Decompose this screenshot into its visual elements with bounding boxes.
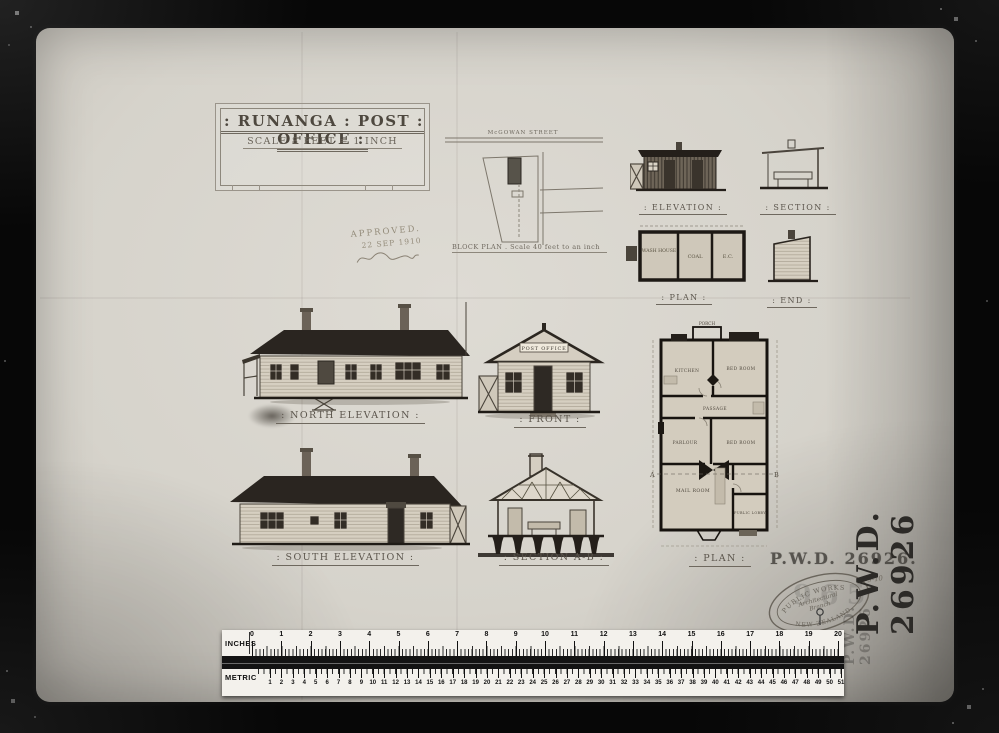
section-marker-b: B — [774, 471, 779, 479]
inch-major-tick — [340, 641, 341, 656]
outbuilding-plan-copper — [626, 246, 637, 261]
cm-number: 30 — [598, 680, 605, 686]
cm-number: 9 — [360, 680, 363, 686]
cm-number: 11 — [381, 680, 387, 686]
cm-major-tick — [658, 669, 659, 678]
porch-walls — [693, 327, 721, 340]
south-elevation-label-text: : SOUTH ELEVATION : — [272, 552, 420, 566]
cm-number: 48 — [803, 680, 810, 686]
cm-number: 38 — [689, 680, 696, 686]
inch-major-tick — [457, 641, 458, 656]
cm-major-tick — [635, 669, 636, 678]
cm-number: 41 — [723, 680, 730, 686]
inch-major-tick — [809, 641, 810, 656]
bedroom-ne-label: BED ROOM — [727, 367, 756, 372]
outbuilding-gate — [630, 164, 643, 189]
cm-number: 16 — [438, 680, 445, 686]
outbuilding-plan-drawing: WASH HOUSE COAL E.C. — [626, 222, 756, 288]
end-porch — [450, 506, 466, 544]
cm-major-tick — [647, 669, 648, 678]
outbuilding-door — [692, 160, 703, 189]
cm-number: 26 — [552, 680, 559, 686]
outbuilding-section-lines — [762, 140, 824, 187]
inch-number: 0 — [250, 631, 254, 638]
ruler-center-band — [222, 656, 844, 669]
cm-major-tick — [339, 669, 340, 678]
block-plan-street-label: McGOWAN STREET — [488, 130, 559, 136]
cm-major-tick — [384, 669, 385, 678]
front-label: : FRONT : — [505, 414, 595, 428]
cm-major-tick — [784, 669, 785, 678]
cm-number: 39 — [701, 680, 708, 686]
cm-major-tick — [521, 669, 522, 678]
side-porch — [479, 376, 498, 412]
rear-door — [388, 508, 404, 544]
cm-major-tick — [590, 669, 591, 678]
cm-major-tick — [601, 669, 602, 678]
cm-major-tick — [704, 669, 705, 678]
cm-number: 8 — [348, 680, 351, 686]
inch-number: 3 — [338, 631, 342, 638]
cm-major-tick — [795, 669, 796, 678]
inch-major-tick — [750, 641, 751, 656]
cm-number: 5 — [314, 680, 317, 686]
inch-number: 6 — [426, 631, 430, 638]
title-block: : RUNANGA : POST : OFFICE : SCALE 8 FEET… — [215, 103, 430, 191]
scan-noise-speckles — [0, 0, 2, 2]
inch-number: 4 — [367, 631, 371, 638]
cm-major-tick — [738, 669, 739, 678]
mail-room-label: MAIL ROOM — [676, 488, 710, 494]
cm-major-tick — [487, 669, 488, 678]
plan-label-text: : PLAN : — [689, 553, 751, 567]
cm-major-tick — [715, 669, 716, 678]
block-plan-drawing: McGOWAN STREET — [443, 125, 608, 245]
hook-mark — [812, 606, 828, 628]
cm-major-tick — [727, 669, 728, 678]
inch-number: 7 — [455, 631, 459, 638]
bedroom-mid-label: BED ROOM — [727, 441, 756, 446]
inch-number: 2 — [309, 631, 313, 638]
ground-shadow — [270, 399, 450, 405]
cm-number: 31 — [609, 680, 616, 686]
cm-number: 2 — [280, 680, 283, 686]
cm-major-tick — [396, 669, 397, 678]
cm-major-tick — [841, 669, 842, 678]
cm-major-tick — [510, 669, 511, 678]
cm-number: 32 — [621, 680, 628, 686]
interior-fittings — [508, 508, 586, 536]
inch-major-tick — [779, 641, 780, 656]
cm-major-tick — [624, 669, 625, 678]
outbuilding-vent — [676, 142, 682, 150]
porch-label: PORCH — [699, 321, 716, 326]
kitchen-label: KITCHEN — [675, 369, 700, 374]
block-plan-caption: BLOCK PLAN . Scale 40 feet to an inch — [452, 243, 607, 253]
section-ab-label: : SECTION A-B : — [494, 552, 614, 566]
porch — [242, 354, 260, 396]
cm-number: 37 — [678, 680, 685, 686]
inch-number: 18 — [775, 631, 783, 638]
finial — [542, 323, 546, 331]
coal-label: COAL — [688, 254, 704, 260]
cm-major-tick — [316, 669, 317, 678]
cm-major-tick — [567, 669, 568, 678]
inch-major-tick — [281, 641, 282, 656]
inch-major-tick — [486, 641, 487, 656]
ruler-metric-scale: METRIC 123456789101112131415161718192021… — [222, 669, 844, 696]
title-block-tick — [365, 185, 393, 191]
south-elevation-drawing — [222, 440, 472, 558]
cm-number: 18 — [461, 680, 468, 686]
cm-major-tick — [441, 669, 442, 678]
cm-major-tick — [613, 669, 614, 678]
section-ab-label-text: : SECTION A-B : — [499, 552, 609, 566]
cm-number: 45 — [769, 680, 776, 686]
inch-number: 13 — [629, 631, 637, 638]
outbuilding-section-drawing — [758, 136, 830, 198]
cm-major-tick — [544, 669, 545, 678]
outbuilding-end-label-text: : END : — [767, 296, 817, 308]
cm-major-tick — [807, 669, 808, 678]
cm-major-tick — [281, 669, 282, 678]
cm-number: 47 — [792, 680, 799, 686]
cm-minor-ticks — [258, 669, 846, 674]
cm-major-tick — [464, 669, 465, 678]
inch-major-tick — [369, 641, 370, 656]
block-plan-building — [508, 158, 521, 184]
inch-major-tick — [604, 641, 605, 656]
cm-number: 43 — [746, 680, 753, 686]
cm-number: 10 — [369, 680, 376, 686]
section-ab-drawing — [478, 452, 614, 560]
inch-number: 15 — [688, 631, 696, 638]
inch-major-tick — [545, 641, 546, 656]
cm-major-tick — [773, 669, 774, 678]
inch-number: 5 — [397, 631, 401, 638]
cm-major-tick — [418, 669, 419, 678]
cm-number: 33 — [632, 680, 639, 686]
cm-number: 22 — [506, 680, 513, 686]
cm-major-tick — [578, 669, 579, 678]
roof — [230, 476, 462, 506]
inch-major-tick — [428, 641, 429, 656]
outbuilding-elevation-label-text: : ELEVATION : — [639, 203, 727, 215]
cm-number: 12 — [392, 680, 399, 686]
cm-number: 20 — [484, 680, 491, 686]
cm-number: 51 — [838, 680, 845, 686]
cm-number: 34 — [644, 680, 651, 686]
cm-major-tick — [361, 669, 362, 678]
inch-major-tick — [252, 641, 253, 656]
title-block-tick — [232, 185, 260, 191]
cm-number: 49 — [815, 680, 822, 686]
roof — [250, 330, 470, 356]
cm-major-tick — [498, 669, 499, 678]
entry-steps — [739, 530, 757, 536]
outbuilding-end-walls — [774, 237, 810, 280]
north-elevation-label: : NORTH ELEVATION : — [268, 410, 433, 424]
cm-major-tick — [350, 669, 351, 678]
inch-major-tick — [311, 641, 312, 656]
inch-number: 12 — [600, 631, 608, 638]
cm-number: 27 — [564, 680, 571, 686]
cm-number: 29 — [586, 680, 593, 686]
front-elevation-drawing: POST OFFICE — [478, 322, 614, 422]
inch-major-tick — [633, 641, 634, 656]
cm-major-tick — [693, 669, 694, 678]
drawing-scale-text: SCALE 8 FEET = 1 INCH — [243, 136, 402, 149]
outbuilding-elevation-label: : ELEVATION : — [638, 203, 728, 215]
outbuilding-end-drawing — [760, 228, 824, 290]
scan-background: : RUNANGA : POST : OFFICE : SCALE 8 FEET… — [0, 0, 999, 733]
cm-number: 23 — [518, 680, 525, 686]
floor-plan-drawing: PORCH — [645, 318, 785, 560]
block-plan-site-boundary — [483, 152, 603, 245]
cm-major-tick — [373, 669, 374, 678]
inch-major-tick — [516, 641, 517, 656]
parlour-label: PARLOUR — [673, 441, 698, 446]
notice-board — [318, 361, 334, 384]
cm-number: 36 — [666, 680, 673, 686]
inch-major-tick — [838, 641, 839, 656]
cm-number: 13 — [404, 680, 411, 686]
north-elevation-label-text: : NORTH ELEVATION : — [276, 410, 425, 424]
cm-major-tick — [293, 669, 294, 678]
inch-number: 9 — [514, 631, 518, 638]
outbuilding-plan-label: : PLAN : — [644, 293, 724, 305]
front-label-text: : FRONT : — [514, 414, 585, 428]
chimneys — [300, 304, 411, 330]
cm-number: 4 — [303, 680, 306, 686]
inch-number: 10 — [541, 631, 549, 638]
inch-major-tick — [662, 641, 663, 656]
block-plan-outbuilding — [512, 191, 523, 197]
cm-number: 42 — [735, 680, 742, 686]
cm-major-tick — [750, 669, 751, 678]
cm-major-tick — [327, 669, 328, 678]
ground-shadow — [242, 545, 442, 551]
post-office-sign-text: POST OFFICE — [521, 346, 566, 352]
cm-number: 17 — [449, 680, 456, 686]
ruler-metric-title: METRIC — [225, 673, 257, 682]
north-elevation-drawing — [240, 298, 472, 416]
cm-major-tick — [430, 669, 431, 678]
cm-major-tick — [453, 669, 454, 678]
outbuilding-door — [664, 160, 675, 189]
cm-number: 3 — [291, 680, 294, 686]
cm-number: 15 — [427, 680, 434, 686]
inch-number: 1 — [279, 631, 283, 638]
scale-ruler: INCHES 01234567891011121314151617181920 … — [222, 630, 844, 696]
cm-number: 28 — [575, 680, 582, 686]
inch-number: 8 — [484, 631, 488, 638]
cm-major-tick — [670, 669, 671, 678]
inch-number: 11 — [571, 631, 578, 638]
cm-number: 46 — [781, 680, 788, 686]
cm-number: 21 — [495, 680, 502, 686]
inch-number: 19 — [805, 631, 813, 638]
public-lobby-label: PUBLIC LOBBY — [734, 511, 766, 515]
outbuilding-end-label: : END : — [762, 296, 822, 308]
cm-major-tick — [304, 669, 305, 678]
cm-major-tick — [533, 669, 534, 678]
ruler-inches-scale: INCHES 01234567891011121314151617181920 — [222, 630, 844, 656]
block-plan-street-lines — [445, 138, 603, 142]
cm-major-tick — [270, 669, 271, 678]
chimneys — [300, 448, 421, 476]
inch-number: 16 — [717, 631, 725, 638]
inch-major-tick — [692, 641, 693, 656]
cm-major-tick — [818, 669, 819, 678]
cm-number: 1 — [268, 680, 271, 686]
section-marker-a: A — [649, 471, 655, 479]
cm-major-tick — [761, 669, 762, 678]
cm-number: 24 — [529, 680, 536, 686]
outbuilding-plan-label-text: : PLAN : — [656, 293, 711, 305]
washhouse-label: WASH HOUSE — [642, 248, 677, 254]
outbuilding-elevation-drawing — [630, 136, 730, 198]
outbuilding-section-label-text: : SECTION : — [760, 203, 835, 215]
drawing-scale-note: SCALE 8 FEET = 1 INCH — [216, 136, 429, 147]
cm-number: 6 — [325, 680, 328, 686]
outbuilding-roof — [638, 150, 722, 157]
door-sign-plate — [386, 502, 406, 508]
cm-number: 19 — [472, 680, 479, 686]
outbuilding-walls — [644, 156, 716, 189]
cm-number: 35 — [655, 680, 662, 686]
cm-major-tick — [407, 669, 408, 678]
cm-number: 44 — [758, 680, 765, 686]
cm-major-tick — [476, 669, 477, 678]
inch-major-tick — [574, 641, 575, 656]
cm-major-tick — [681, 669, 682, 678]
passage-label: PASSAGE — [703, 407, 727, 412]
inch-major-tick — [721, 641, 722, 656]
cm-major-tick — [830, 669, 831, 678]
pwd-vertical-stamp-ghost: P.W.D. 26926 — [842, 545, 874, 665]
inch-major-tick — [399, 641, 400, 656]
inch-number: 17 — [746, 631, 754, 638]
plan-label: : PLAN : — [680, 553, 760, 567]
approved-stamp: APPROVED. 22 SEP 1910 — [350, 222, 443, 273]
inch-number: 14 — [658, 631, 666, 638]
cm-major-tick — [556, 669, 557, 678]
south-elevation-label: : SOUTH ELEVATION : — [268, 552, 423, 566]
cm-number: 14 — [415, 680, 422, 686]
cm-number: 40 — [712, 680, 719, 686]
outbuilding-section-label: : SECTION : — [758, 203, 838, 215]
entrance-door — [534, 366, 552, 412]
cm-number: 25 — [541, 680, 548, 686]
inch-number: 20 — [834, 631, 842, 638]
ec-label: E.C. — [723, 254, 734, 260]
cm-number: 7 — [337, 680, 340, 686]
outbuilding-end-vent — [788, 230, 795, 239]
cm-number: 50 — [826, 680, 833, 686]
